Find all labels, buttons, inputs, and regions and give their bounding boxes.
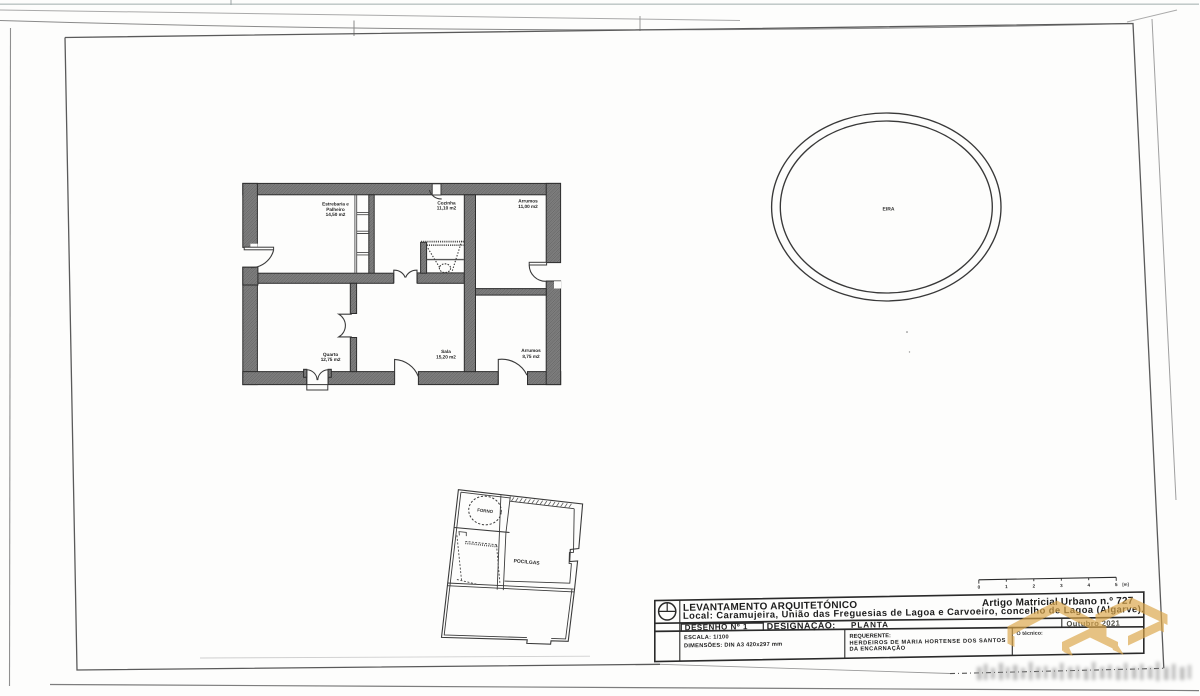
- svg-text:12,75 m2: 12,75 m2: [321, 357, 341, 362]
- svg-text:Arrumos: Arrumos: [521, 348, 541, 353]
- svg-text:PLANTA: PLANTA: [851, 620, 889, 630]
- svg-text:O técnico:: O técnico:: [1016, 631, 1043, 637]
- svg-text:11,10 m2: 11,10 m2: [437, 206, 457, 211]
- svg-text:14,50 m2: 14,50 m2: [326, 212, 346, 217]
- svg-text:Arrumos: Arrumos: [518, 199, 538, 204]
- svg-text:1: 1: [1005, 584, 1008, 589]
- svg-text:Sala: Sala: [441, 349, 451, 354]
- svg-text:15,20 m2: 15,20 m2: [436, 355, 456, 360]
- svg-text:REQUERENTE:: REQUERENTE:: [849, 633, 891, 640]
- svg-text:2: 2: [1033, 584, 1036, 589]
- svg-text:Cozinha: Cozinha: [437, 200, 456, 205]
- svg-text:FORNO: FORNO: [477, 507, 494, 514]
- svg-text:DIMENSÕES: DIN A3 420x297 mm: DIMENSÕES: DIN A3 420x297 mm: [684, 640, 783, 650]
- svg-text:4: 4: [1087, 583, 1090, 588]
- svg-text:POCILGAS: POCILGAS: [513, 558, 540, 566]
- svg-text:0: 0: [978, 585, 981, 590]
- svg-text:3: 3: [1060, 583, 1063, 588]
- svg-text:EIRA: EIRA: [883, 207, 895, 213]
- svg-text:8,75 m2: 8,75 m2: [522, 354, 540, 359]
- svg-text:DESENHO Nº 1: DESENHO Nº 1: [685, 622, 748, 632]
- svg-text:DESIGNAÇÃO:: DESIGNAÇÃO:: [767, 619, 836, 631]
- svg-text:[m]: [m]: [1122, 582, 1129, 587]
- svg-text:ESCALA: 1/100: ESCALA: 1/100: [684, 633, 729, 641]
- svg-text:11,00 m2: 11,00 m2: [518, 204, 538, 209]
- svg-text:5: 5: [1115, 582, 1118, 587]
